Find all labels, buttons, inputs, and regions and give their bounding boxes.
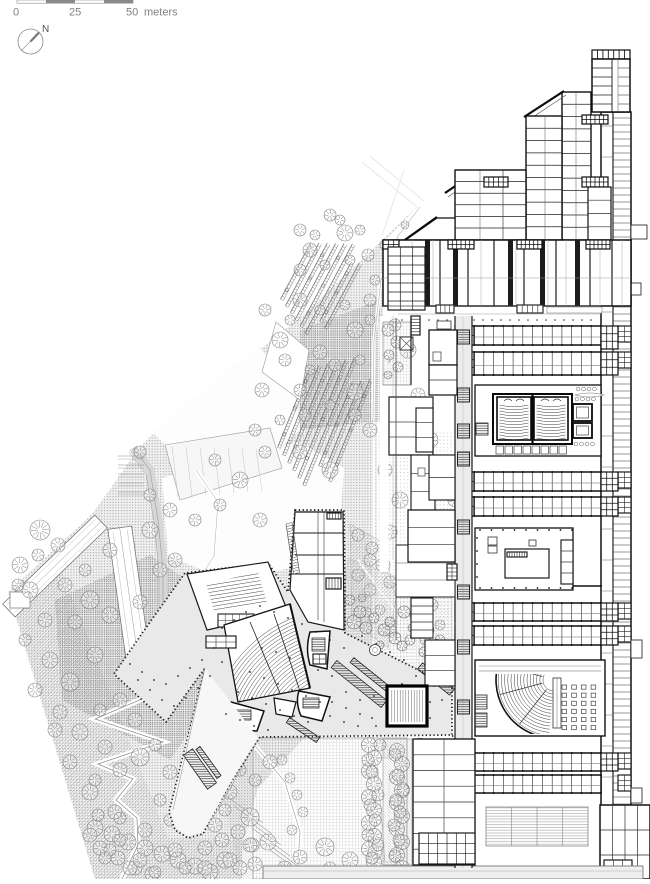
svg-text:0: 0 (13, 7, 19, 19)
svg-text:meters: meters (144, 7, 178, 19)
svg-text:N: N (42, 24, 49, 35)
svg-text:25: 25 (69, 7, 81, 19)
svg-text:50: 50 (126, 7, 138, 19)
